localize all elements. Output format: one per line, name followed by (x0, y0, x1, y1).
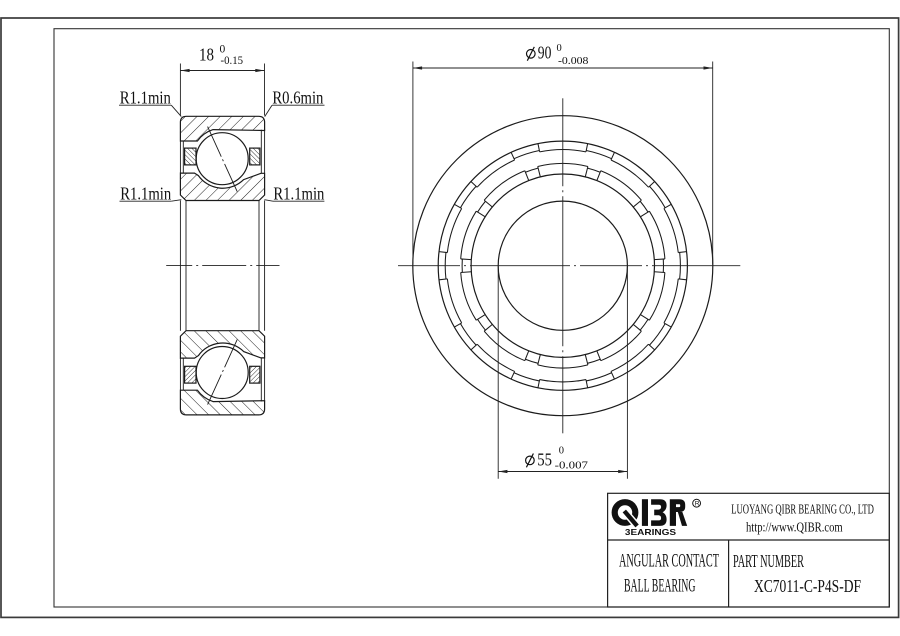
svg-text:3EARINGS: 3EARINGS (625, 527, 677, 537)
svg-text:R1.1min: R1.1min (120, 88, 171, 108)
svg-text:0: 0 (220, 44, 226, 56)
svg-text:XC7011-C-P4S-DF: XC7011-C-P4S-DF (754, 576, 861, 596)
svg-text:-0.15: -0.15 (221, 55, 244, 67)
svg-text:LUOYANG QIBR BEARING CO., LTD: LUOYANG QIBR BEARING CO., LTD (731, 502, 874, 517)
svg-text:BALL BEARING: BALL BEARING (624, 576, 696, 597)
svg-text:R1.1min: R1.1min (120, 183, 171, 203)
svg-text:0: 0 (557, 43, 562, 54)
svg-text:-0.007: -0.007 (555, 460, 589, 472)
svg-text:90: 90 (538, 43, 552, 63)
svg-text:PART NUMBER: PART NUMBER (733, 551, 804, 571)
svg-text:http://www.QIBR.com: http://www.QIBR.com (746, 521, 843, 536)
svg-text:ANGULAR CONTACT: ANGULAR CONTACT (619, 551, 719, 572)
svg-text:-0.008: -0.008 (558, 55, 589, 67)
svg-text:R1.1min: R1.1min (273, 183, 324, 203)
svg-text:R0.6min: R0.6min (272, 88, 323, 108)
svg-text:55: 55 (537, 449, 552, 469)
svg-text:18: 18 (199, 45, 214, 65)
svg-text:R: R (695, 501, 700, 508)
svg-text:0: 0 (559, 445, 564, 456)
